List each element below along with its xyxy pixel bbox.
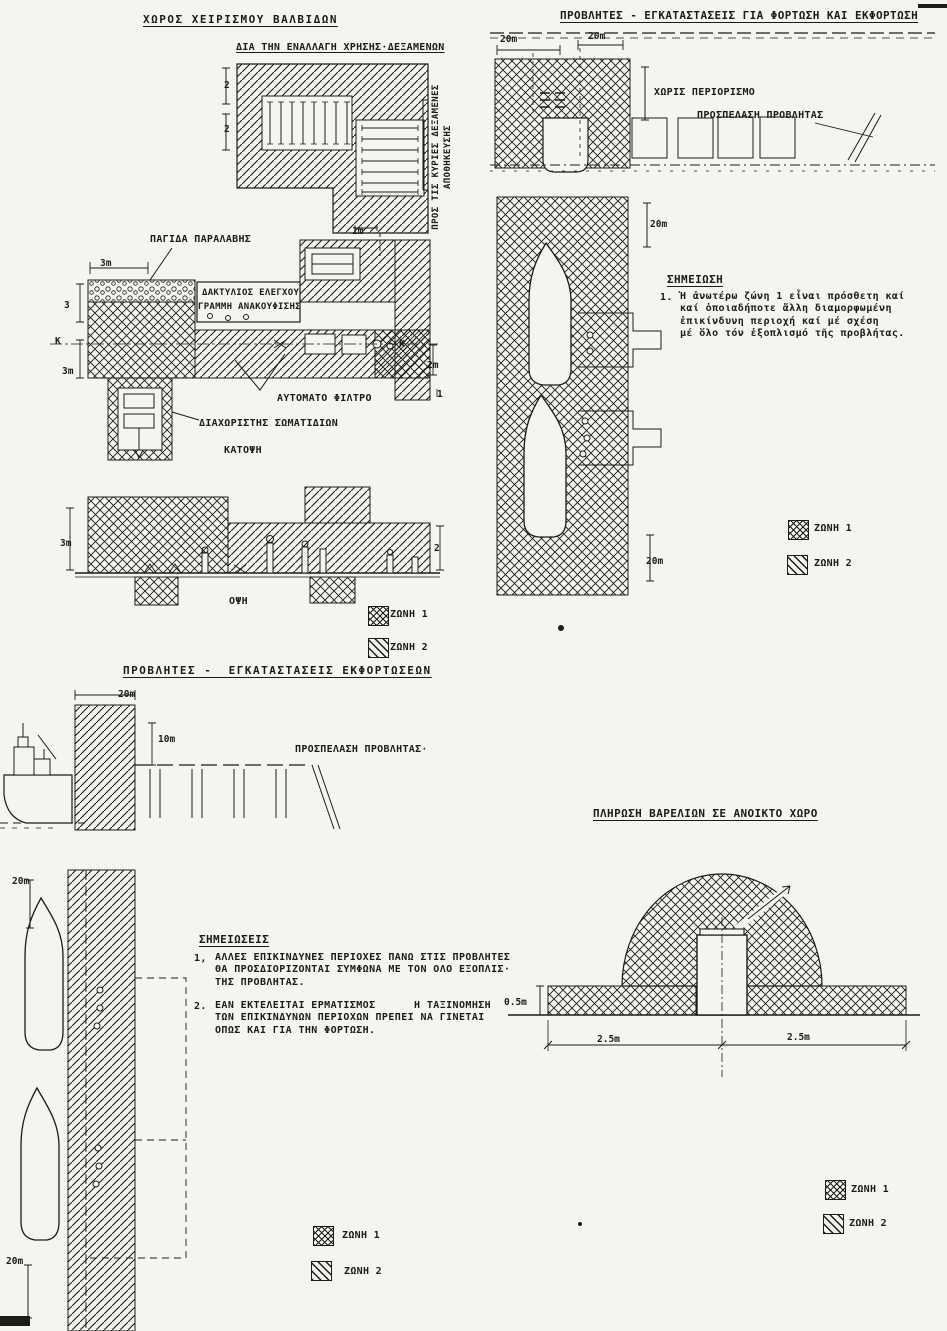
note2-text: ΕΑΝ ΕΚΤΕΛΕΙΤΑΙ ΕΡΜΑΤΙΣΜΟΣ Η ΤΑΞΙΝΟΜΗΣΗ Τ… xyxy=(215,1000,491,1037)
loading-note-text: Ἡ ἀνωτέρω ζώνη 1 εἶναι πρόσθετη καί καί … xyxy=(680,291,905,341)
scan-speckle xyxy=(558,625,564,631)
legend-zone1-label: ΖΩΝΗ 1 xyxy=(814,523,852,535)
dim-label: 2 xyxy=(434,543,440,555)
note-line: καί ὁποιαδήποτε ἄλλη διαμορφωμένη xyxy=(680,303,905,315)
ship-outline xyxy=(21,1088,59,1240)
scan-artifact xyxy=(0,1316,30,1326)
dim-label: 10m xyxy=(158,734,175,746)
dim-label: 20m xyxy=(646,556,663,568)
dim-label: 20m xyxy=(650,219,667,231)
note-line: μέ ὅλο τόν ἐξοπλισμό τῆς προβλήτας. xyxy=(680,328,905,340)
note-line: ΤΗΣ ΠΡΟΒΛΗΤΑΣ. xyxy=(215,977,510,989)
legend-zone1-swatch xyxy=(788,520,809,540)
scanned-drawing-page: ΧΩΡΟΣ ΧΕΙΡΙΣΜΟΥ ΒΑΛΒΙΔΩΝ ΔΙΑ ΤΗΝ ΕΝΑΛΛΑΓ… xyxy=(0,0,947,1331)
bottom-pier-diagram xyxy=(0,850,200,1331)
auto-filter-label: ΑΥΤΟΜΑΤΟ ΦΙΛΤΡΟ xyxy=(277,393,372,405)
legend-zone2-swatch xyxy=(368,638,389,658)
legend-zone2-swatch xyxy=(823,1214,844,1234)
legend-zone1-label: ΖΩΝΗ 1 xyxy=(851,1184,889,1196)
control-ring-label: ΔΑΚΤΥΛΙΟΣ ΕΛΕΓΧΟΥ xyxy=(202,287,299,299)
dim-label: 2 xyxy=(224,80,230,92)
legend-zone2-label: ΖΩΝΗ 2 xyxy=(849,1218,887,1230)
legend-zone1-label: ΖΩΝΗ 1 xyxy=(342,1230,380,1242)
separator-slot xyxy=(118,388,162,450)
legend-zone2-swatch xyxy=(787,555,808,575)
scan-speckle xyxy=(578,1222,582,1226)
to-main-tanks-line1: ΠΡΟΣ ΤΙΣ ΚΥΡΙΕΣ ΔΕΞΑΜΕΝΕΣ xyxy=(430,71,442,243)
legend-zone1-swatch xyxy=(313,1226,334,1246)
legend-zone1-swatch xyxy=(825,1180,846,1200)
note-line: ἐπικίνδυνη περιοχή καί μέ σχέση xyxy=(680,316,905,328)
tank-switch-label: ΔΙΑ ΤΗΝ ΕΝΑΛΛΑΓΗ ΧΡΗΣΗΣ·ΔΕΞΑΜΕΝΩΝ xyxy=(236,42,445,54)
note-line: ΘΑ ΠΡΟΣΔΙΟΡΙΖΟΝΤΑΙ ΣΥΜΦΩΝΑ ΜΕ ΤΟΝ ΟΛΟ ΕΞ… xyxy=(215,964,510,976)
manifold-box xyxy=(262,96,352,150)
barrel-filling-diagram xyxy=(500,855,930,1085)
tanker-hull xyxy=(4,775,72,823)
no-restriction-label: ΧΩΡΙΣ ΠΕΡΙΟΡΙΣΜΟ xyxy=(654,87,755,99)
dim-label: 3m xyxy=(100,258,111,270)
receiving-trap-label: ΠΑΓΙΔΑ ΠΑΡΑΛΑΒΗΣ xyxy=(150,234,251,246)
legend-zone1-swatch xyxy=(368,606,389,626)
berth-shape xyxy=(543,118,588,172)
valve-manifold-diagram xyxy=(210,56,450,261)
pattern-defs xyxy=(0,0,1,1)
dim-label: 1 xyxy=(437,389,443,401)
note-line: ΤΩΝ ΕΠΙΚΙΝΔΥΝΩΝ ΠΕΡΙΟΧΩΝ ΠΡΕΠΕΙ ΝΑ ΓΙΝΕΤ… xyxy=(215,1012,491,1024)
valve-group-box xyxy=(356,120,424,196)
dim-label: 20m xyxy=(12,876,29,888)
dim-label: 0.5m xyxy=(504,997,527,1009)
dim-label: 2.5m xyxy=(787,1032,810,1044)
note1-text: ΑΛΛΕΣ ΕΠΙΚΙΝΔΥΝΕΣ ΠΕΡΙΟΧΕΣ ΠΑΝΩ ΣΤΙΣ ΠΡΟ… xyxy=(215,952,510,989)
relief-line-label: ΓΡΑΜΜΗ ΑΝΑΚΟΥΦΙΣΗΣ xyxy=(198,301,301,313)
note-line: Ἡ ἀνωτέρω ζώνη 1 εἶναι πρόσθετη καί xyxy=(680,291,905,303)
ship-outline xyxy=(25,898,63,1050)
legend-zone2-label: ΖΩΝΗ 2 xyxy=(390,642,428,654)
pier-access-label: ΠΡΟΣΠΕΛΑΣΗ ΠΡΟΒΛΗΤΑΣ xyxy=(697,110,823,122)
dim-label: 2.5m xyxy=(597,1034,620,1046)
to-main-tanks-label: ΠΡΟΣ ΤΙΣ ΚΥΡΙΕΣ ΔΕΞΑΜΕΝΕΣ ΑΠΟΘΗΚΕΥΣΗΣ xyxy=(430,71,454,243)
dim-label: 20m xyxy=(118,689,135,701)
unloading-notes-title: ΣΗΜΕΙΩΣΕΙΣ xyxy=(199,934,269,946)
scan-artifact xyxy=(918,4,947,8)
pier-access-label: ΠΡΟΣΠΕΛΑΣΗ ΠΡΟΒΛΗΤΑΣ· xyxy=(295,744,428,756)
note-line: ΟΠΩΣ ΚΑΙ ΓΙΑ ΤΗΝ ΦΟΡΤΩΣΗ. xyxy=(215,1025,491,1037)
dim-label: 2 xyxy=(224,124,230,136)
legend-zone2-label: ΖΩΝΗ 2 xyxy=(344,1266,382,1278)
to-main-tanks-line2: ΑΠΟΘΗΚΕΥΣΗΣ xyxy=(442,71,454,243)
receiving-trap-strip xyxy=(88,280,195,302)
unloading-piers-title: ΠΡΟΒΛΗΤΕΣ - ΕΓΚΑΤΑΣΤΑΣΕΙΣ ΕΚΦΟΡΤΩΣΕΩΝ xyxy=(123,665,432,677)
dim-label: 3m xyxy=(60,538,71,550)
unloading-elevation-diagram xyxy=(0,683,470,833)
section-mark: Κ xyxy=(399,339,405,351)
dim-label: 3m xyxy=(62,366,73,378)
legend-zone1-label: ΖΩΝΗ 1 xyxy=(390,609,428,621)
note2-number: 2. xyxy=(194,1001,207,1013)
loading-piers-title: ΠΡΟΒΛΗΤΕΣ - ΕΓΚΑΤΑΣΤΑΣΕΙΣ ΓΙΑ ΦΟΡΤΩΣΗ ΚΑ… xyxy=(560,10,918,22)
loading-pier-plan-diagram xyxy=(485,25,945,180)
valve-elevation-diagram xyxy=(55,483,450,608)
legend-zone2-swatch xyxy=(311,1261,332,1281)
dim-label: 20m xyxy=(6,1256,23,1268)
barrel-filling-title: ΠΛΗΡΩΣΗ ΒΑΡΕΛΙΩΝ ΣΕ ΑΝΟΙΚΤΟ ΧΩΡΟ xyxy=(593,808,818,820)
elevation-caption: ΟΨΗ xyxy=(229,596,248,608)
loading-note-title: ΣΗΜΕΙΩΣΗ xyxy=(667,274,723,286)
dim-label: 3 xyxy=(64,300,70,312)
particle-separator-label: ΔΙΑΧΩΡΙΣΤΗΣ ΣΩΜΑΤΙΔΙΩΝ xyxy=(199,418,338,430)
dim-label: 2m xyxy=(427,360,438,372)
note-line: ΕΑΝ ΕΚΤΕΛΕΙΤΑΙ ΕΡΜΑΤΙΣΜΟΣ Η ΤΑΞΙΝΟΜΗΣΗ xyxy=(215,1000,491,1012)
note-line: ΑΛΛΕΣ ΕΠΙΚΙΝΔΥΝΕΣ ΠΕΡΙΟΧΕΣ ΠΑΝΩ ΣΤΙΣ ΠΡΟ… xyxy=(215,952,510,964)
valve-area-title: ΧΩΡΟΣ ΧΕΙΡΙΣΜΟΥ ΒΑΛΒΙΔΩΝ xyxy=(143,14,338,26)
vertical-pier-diagram xyxy=(483,183,678,603)
note1-number: 1, xyxy=(194,953,207,965)
dim-label: 20m xyxy=(500,34,517,46)
dim-label: 20m xyxy=(588,31,605,43)
section-mark: Κ xyxy=(55,336,61,348)
loading-note-number: 1. xyxy=(660,292,673,304)
legend-zone2-label: ΖΩΝΗ 2 xyxy=(814,558,852,570)
plan-caption: ΚΑΤΟΨΗ xyxy=(224,445,262,457)
